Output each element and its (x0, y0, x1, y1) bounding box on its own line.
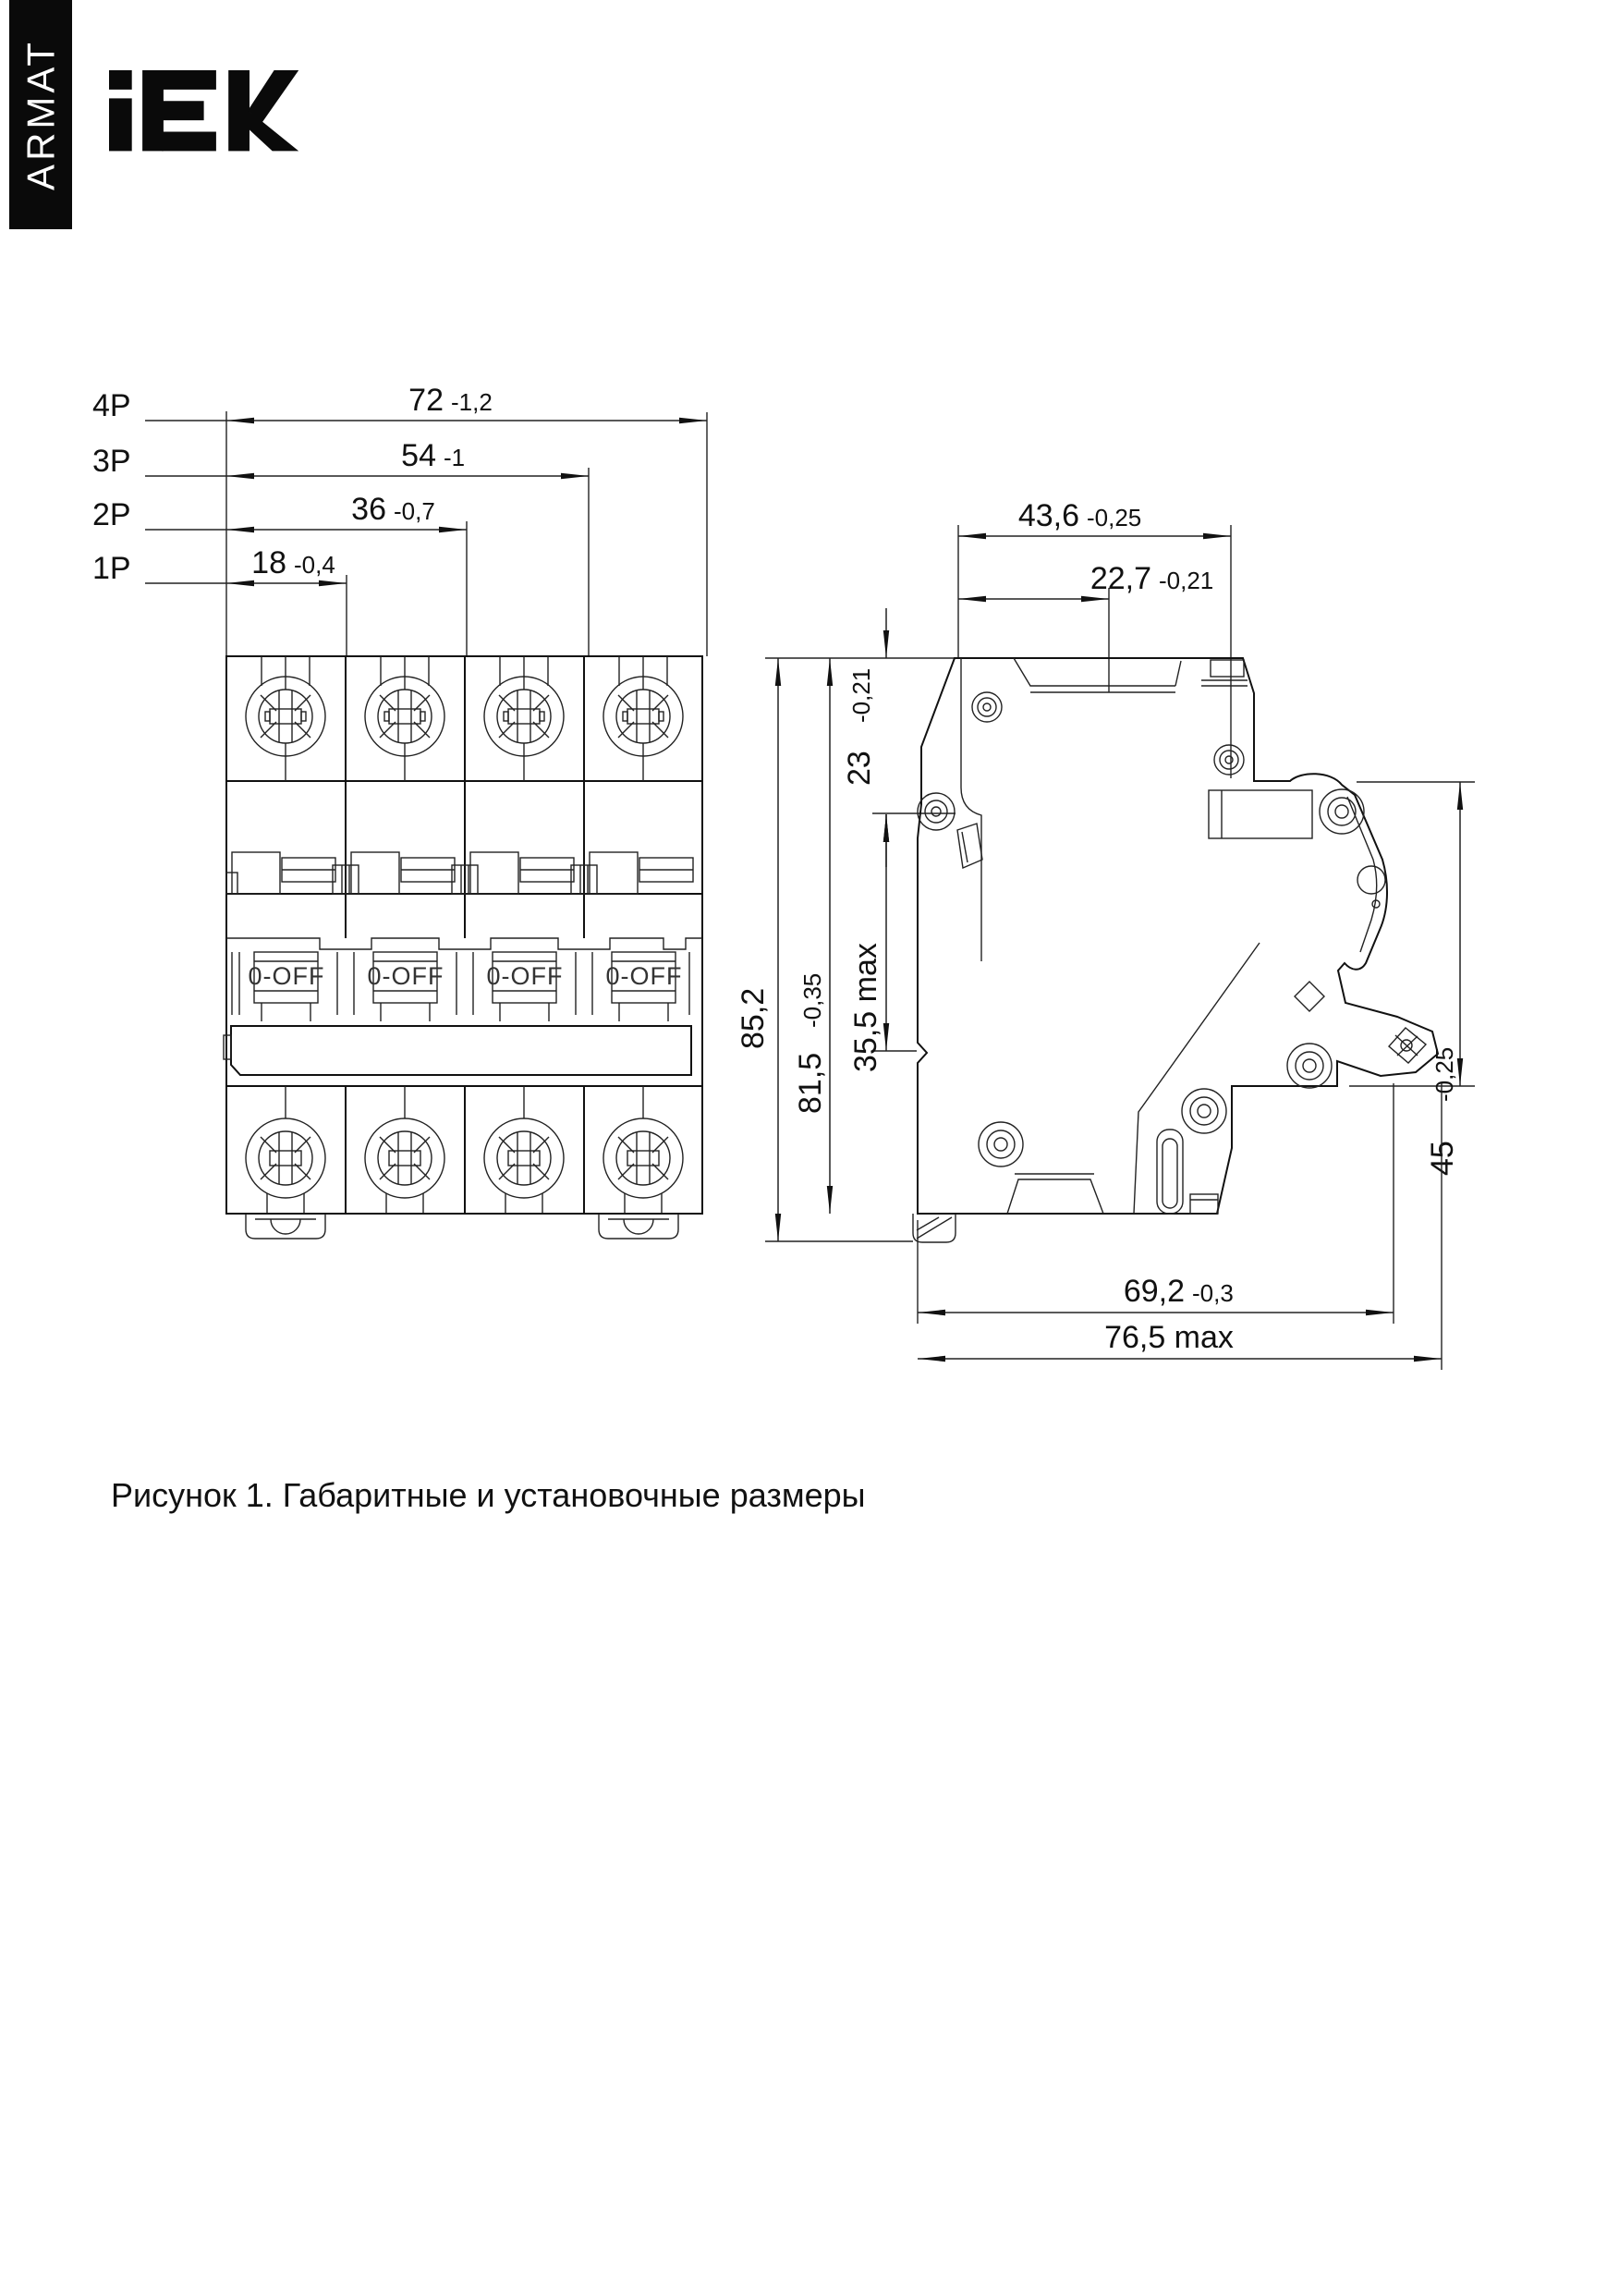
dim-value: 69,2 (1124, 1274, 1185, 1309)
handle-bar (224, 1026, 691, 1075)
side-screw (918, 692, 1385, 1166)
toggle-row: 0-OFF 0-OFF 0-OFF (232, 952, 689, 1021)
dim-81-5: 81,5 -0,35 (793, 658, 830, 1214)
datasheet-page: ARMAT IEK 4P 72 -1,2 3P 54 -1 (0, 0, 1619, 2296)
dim-tol: -0,35 (798, 973, 826, 1028)
dim-3p: 3P 54 -1 (92, 438, 589, 479)
dim-value: 81,5 (793, 1053, 828, 1114)
binding-screw (1389, 1028, 1426, 1063)
dim-tol: -0,7 (394, 497, 435, 525)
dim-value: 43,6 (1018, 498, 1079, 533)
toggle-label: 0-OFF (249, 962, 325, 990)
pole-label: 4P (92, 388, 131, 423)
dim-85-2: 85,2 (736, 658, 778, 1241)
din-clip-tab (599, 1214, 678, 1239)
dim-value: 22,7 (1090, 561, 1151, 596)
clip-row (226, 852, 693, 894)
armat-label: ARMAT (19, 39, 63, 190)
dim-value: 18 (251, 545, 286, 580)
toggle-label: 0-OFF (487, 962, 564, 990)
pole-label: 3P (92, 444, 131, 479)
dim-76-5: 76,5 max (918, 1083, 1442, 1370)
dim-value: 35,5 max (848, 943, 883, 1072)
dim-tol: -0,21 (1159, 567, 1213, 594)
toggle-window: 0-OFF (368, 952, 444, 1021)
iek-logo: IEK (109, 70, 298, 151)
breaker-side-body (913, 658, 1438, 1242)
front-view: 4P 72 -1,2 3P 54 -1 2P 36 -0,7 1P 18 -0,… (92, 383, 707, 1239)
dim-value: 23 (842, 751, 877, 786)
dim-tol: -0,3 (1192, 1279, 1234, 1307)
dim-45: 45 -0,25 (1349, 782, 1475, 1176)
dim-43-6: 43,6 -0,25 (958, 498, 1231, 778)
dim-tol: -0,25 (1087, 504, 1141, 531)
dim-23: 23 -0,21 (842, 608, 886, 867)
dim-tol: -0,4 (294, 551, 335, 579)
toggle-label: 0-OFF (606, 962, 683, 990)
dim-69-2: 69,2 -0,3 (918, 1083, 1394, 1324)
dim-value: 45 (1425, 1141, 1460, 1176)
dim-value: 72 (408, 383, 444, 418)
breaker-front-body: 0-OFF 0-OFF 0-OFF (224, 656, 702, 1239)
dim-22-7: 22,7 -0,21 (958, 561, 1213, 692)
dim-tol: -0,21 (847, 668, 875, 723)
dim-4p: 4P 72 -1,2 (92, 383, 707, 423)
dim-tol: -1,2 (451, 388, 493, 416)
dim-35-5: 35,5 max (848, 814, 886, 1072)
pole-label: 1P (92, 551, 131, 586)
dim-value: 76,5 max (1104, 1320, 1234, 1355)
dim-value: 85,2 (736, 988, 771, 1049)
dim-2p: 2P 36 -0,7 (92, 492, 467, 532)
dim-value: 54 (401, 438, 436, 473)
din-clip-tab (246, 1214, 325, 1239)
pole-label: 2P (92, 497, 131, 532)
toggle-window: 0-OFF (606, 952, 683, 1021)
armat-banner: ARMAT (9, 0, 72, 229)
dim-value: 36 (351, 492, 386, 527)
toggle-window: 0-OFF (249, 952, 325, 1021)
figure-caption: Рисунок 1. Габаритные и установочные раз… (111, 1476, 866, 1514)
dim-tol: -1 (444, 444, 465, 471)
toggle-label: 0-OFF (368, 962, 444, 990)
side-view: 43,6 -0,25 22,7 -0,21 85,2 81,5 -0,35 23… (736, 498, 1475, 1370)
toggle-window: 0-OFF (487, 952, 564, 1021)
dim-1p: 1P 18 -0,4 (92, 545, 347, 586)
